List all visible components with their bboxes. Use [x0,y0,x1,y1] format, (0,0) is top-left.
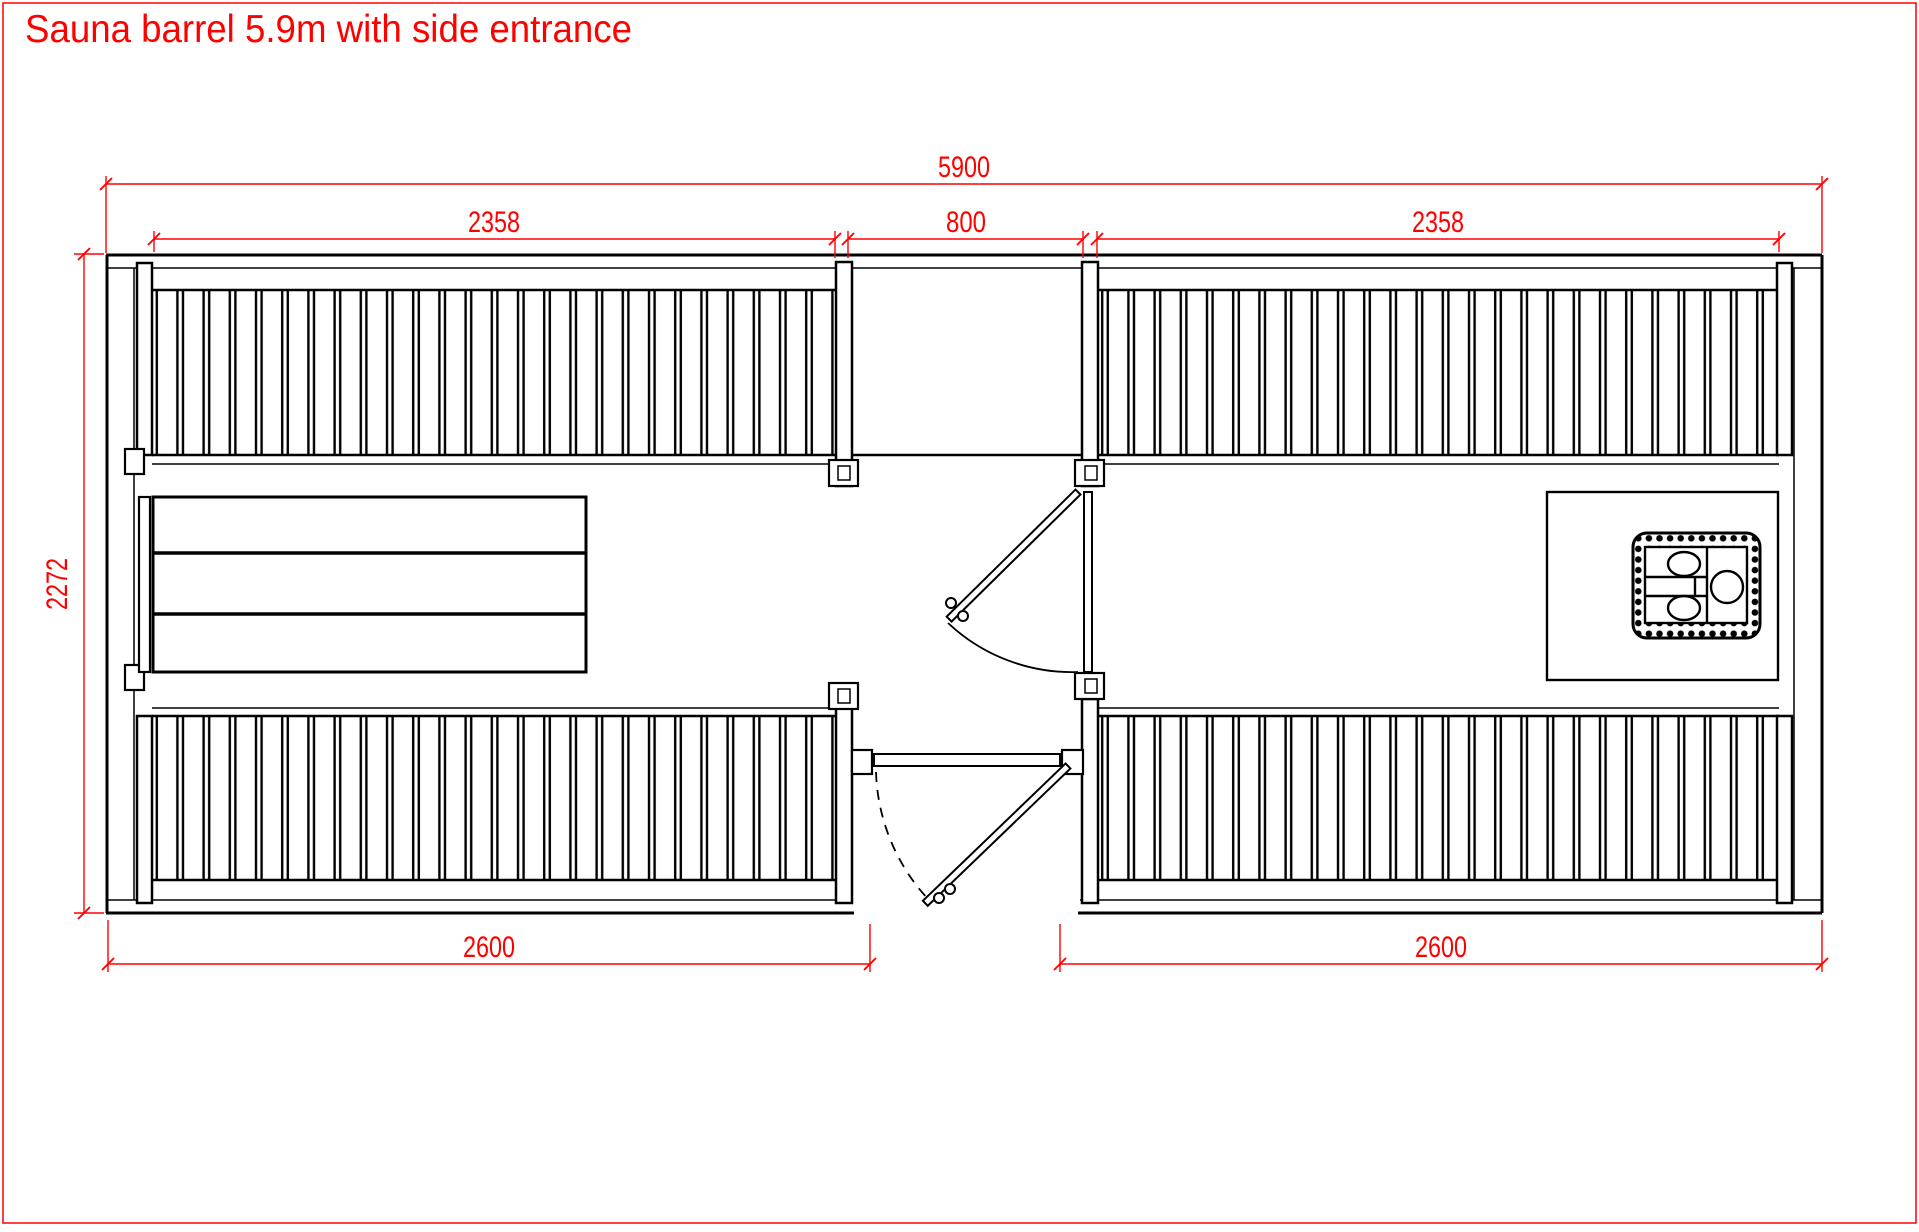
right-partition-top-post [1082,262,1098,486]
drawing-title: Sauna barrel 5.9m with side entrance [25,8,632,51]
dim-barrel-diameter: 2272 [41,558,74,610]
dim-right-room-length: 2358 [1412,206,1464,239]
backrest-board [139,497,150,672]
left-room-bench [153,497,586,672]
left-partition-top-post [836,262,852,486]
post-bottom-right [1777,716,1792,903]
post-top-left [137,263,152,455]
wall-bracket-upper [125,449,144,474]
drawing-page: Sauna barrel 5.9m with side entrance [0,0,1919,1227]
inner-door-closed-leaf [1084,492,1092,672]
dim-right-floor-length: 2600 [1415,931,1467,964]
side-door-left-jamb [852,750,872,774]
side-door-closed-leaf [874,754,1060,766]
slat-band-bottom-right [1098,716,1779,880]
sauna-floor-plan-svg: Sauna barrel 5.9m with side entrance [0,0,1919,1227]
side-door-handle-1 [934,893,944,903]
post-top-right [1777,263,1792,455]
right-partition-bottom-post [1082,699,1098,903]
dim-left-room-length: 2358 [468,206,520,239]
slat-band-top-left [152,291,836,455]
dim-entrance-width: 800 [946,206,986,239]
dim-left-floor-length: 2600 [463,931,515,964]
slat-band-top-right [1098,291,1779,455]
side-door-handle-2 [945,884,955,894]
post-bottom-left [137,716,152,903]
bench-planks [153,497,586,672]
dim-overall-length: 5900 [938,151,990,184]
left-partition-bottom-post [836,699,852,903]
inner-door-handle-2 [958,611,968,621]
slat-band-bottom-left [152,716,836,880]
inner-door-handle-1 [946,598,956,608]
